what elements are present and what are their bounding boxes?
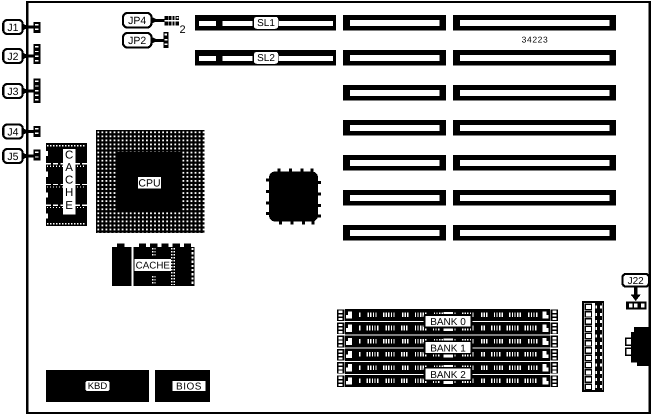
svg-text:H: H [65,187,73,199]
svg-text:CPU: CPU [138,177,160,189]
svg-text:J22: J22 [628,276,645,287]
svg-text:J3: J3 [7,86,18,98]
svg-text:J5: J5 [7,151,18,163]
svg-text:BANK 1: BANK 1 [430,343,466,354]
svg-text:E: E [65,200,73,212]
svg-text:SL2: SL2 [257,53,275,64]
svg-text:BANK 2: BANK 2 [430,370,466,381]
svg-text:34223: 34223 [522,35,549,45]
svg-text:J1: J1 [7,22,18,34]
svg-text:C: C [65,149,73,161]
svg-text:J4: J4 [7,126,18,138]
svg-text:BIOS: BIOS [176,382,202,393]
svg-text:C: C [65,175,73,187]
svg-text:JP4: JP4 [128,15,146,27]
svg-text:JP2: JP2 [128,35,146,47]
svg-text:2: 2 [179,24,185,36]
svg-text:SL1: SL1 [257,18,275,29]
svg-text:CACHE: CACHE [136,260,171,271]
svg-text:J2: J2 [7,51,18,63]
svg-text:KBD: KBD [88,381,108,392]
svg-text:A: A [65,162,73,174]
svg-text:BANK 0: BANK 0 [430,317,466,328]
